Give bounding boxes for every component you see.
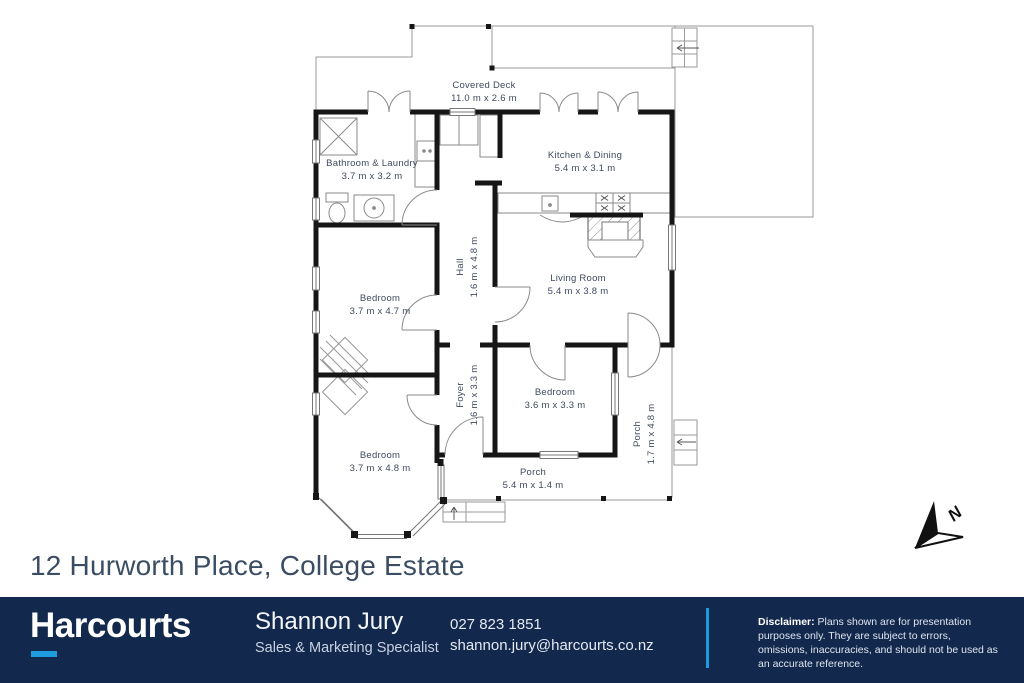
room-label-front-porch: Porch	[520, 467, 546, 478]
room-label-covered-deck: Covered Deck	[452, 80, 515, 91]
pantry	[480, 115, 498, 157]
french-door-deck-1	[368, 91, 410, 112]
floor-plan-svg: Covered Deck 11.0 m x 2.6 m Bathroom & L…	[300, 15, 830, 555]
room-label-bathroom-laundry: Bathroom & Laundry	[326, 158, 418, 169]
room-dims-bathroom-laundry: 3.7 m x 3.2 m	[342, 171, 403, 182]
floor-plan: Covered Deck 11.0 m x 2.6 m Bathroom & L…	[300, 15, 830, 555]
north-arrow: N	[905, 483, 985, 558]
harcourts-logo: Harcourts	[30, 606, 191, 646]
flyer-page: Covered Deck 11.0 m x 2.6 m Bathroom & L…	[0, 0, 1024, 683]
door-bedroom-2	[530, 345, 565, 380]
room-dims-bedroom-2: 3.6 m x 3.3 m	[525, 400, 586, 411]
room-label-kitchen-dining: Kitchen & Dining	[548, 150, 622, 161]
fireplace	[588, 217, 643, 257]
room-label-living-room: Living Room	[550, 273, 606, 284]
north-label: N	[944, 502, 966, 525]
room-dims-side-porch: 1.7 m x 4.8 m	[646, 404, 657, 465]
room-label-bedroom-3: Bedroom	[360, 450, 400, 461]
room-label-foyer: Foyer	[455, 382, 466, 408]
room-dims-bedroom-3: 3.7 m x 4.8 m	[350, 463, 411, 474]
door-bedroom-3	[407, 395, 437, 425]
room-label-side-porch: Porch	[632, 421, 643, 447]
agent-phone: 027 823 1851	[450, 616, 542, 633]
room-label-bedroom-1: Bedroom	[360, 293, 400, 304]
toilet	[326, 193, 348, 202]
room-label-bedroom-2: Bedroom	[535, 387, 575, 398]
room-dims-bedroom-1: 3.7 m x 4.7 m	[350, 306, 411, 317]
door-hall-living	[495, 287, 530, 322]
steps-front-porch	[443, 502, 505, 522]
footer-divider	[706, 608, 709, 668]
agent-email: shannon.jury@harcourts.co.nz	[450, 637, 654, 654]
steps-side-porch	[674, 420, 697, 465]
french-door-deck-3	[598, 92, 638, 112]
agent-role: Sales & Marketing Specialist	[255, 640, 439, 656]
disclaimer-label: Disclaimer:	[758, 616, 815, 628]
property-address: 12 Hurworth Place, College Estate	[30, 550, 465, 582]
door-living-porch	[628, 313, 660, 377]
room-dims-foyer: 1.6 m x 3.3 m	[469, 365, 480, 426]
stairs-top	[672, 28, 699, 67]
agent-name: Shannon Jury	[255, 608, 403, 636]
disclaimer: Disclaimer: Plans shown are for presenta…	[758, 615, 998, 671]
room-label-hall: Hall	[455, 258, 466, 275]
room-dims-front-porch: 5.4 m x 1.4 m	[503, 480, 564, 491]
deck-and-porch-outline	[316, 26, 813, 500]
footer-bar: Harcourts Shannon Jury Sales & Marketing…	[0, 597, 1024, 683]
room-labels: Covered Deck 11.0 m x 2.6 m Bathroom & L…	[326, 80, 657, 491]
kitchen-counter	[498, 193, 672, 213]
room-dims-living-room: 5.4 m x 3.8 m	[548, 286, 609, 297]
door-bathroom	[402, 190, 437, 225]
room-dims-covered-deck: 11.0 m x 2.6 m	[451, 93, 517, 104]
french-door-deck-2	[540, 93, 578, 112]
room-dims-hall: 1.6 m x 4.8 m	[469, 237, 480, 298]
harcourts-logo-underline	[31, 651, 57, 657]
room-dims-kitchen-dining: 5.4 m x 3.1 m	[555, 163, 616, 174]
